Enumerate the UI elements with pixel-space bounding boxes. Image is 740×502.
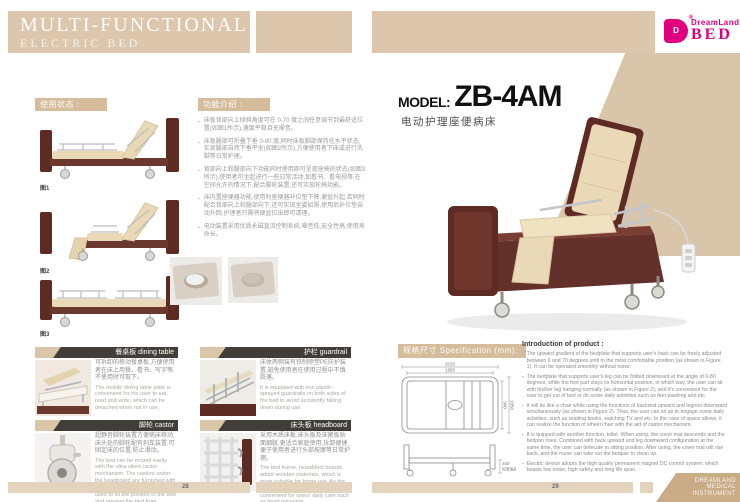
intro-bullet: ▪The upward gradient of the bedplate tha… xyxy=(522,351,727,371)
feature-title-zh: 护栏 xyxy=(304,349,318,356)
toilet-open-detail-image xyxy=(170,257,222,305)
feature-text-zh: 采用木质床板,床头板及床尾板贴面细腻,更适合家庭使用,拆卸便捷,便于使用者进行头… xyxy=(260,433,351,463)
feature-bullet-text: 床内置座便器功能,使用时座便器补位垫下降,便盆升起,若同时配合背部向上和腿部向下… xyxy=(204,195,366,218)
feature-title-zh: 脚轮 xyxy=(139,422,153,429)
feature-box-header: 护栏 guardrail xyxy=(200,347,351,358)
bed-figure-1-image xyxy=(35,110,185,182)
title-banner: MULTI-FUNCTIONAL ELECTRIC BED xyxy=(8,11,250,53)
toilet-closed-detail-image xyxy=(228,257,278,303)
bullet-icon: ▪ xyxy=(522,432,524,458)
feature-bullet-text: 床板背部向上倾斜角度可在 0-70 度之间任意调节到最舒适位置(如图1所示),速… xyxy=(204,118,366,134)
registered-mark-icon: ® xyxy=(689,15,693,21)
brand-text: DreamLand BED xyxy=(691,19,740,43)
intro-bullet-text: The bedplate that supports user's leg ca… xyxy=(527,374,727,400)
brand-logo: D ® DreamLand BED xyxy=(664,13,740,49)
dim-height: 450 xyxy=(502,461,510,466)
footer-bar-right-segment xyxy=(640,482,653,493)
feature-bullet: ▪背部向上和腿部向下功能同时使用即可呈现座椅的状态(如图3所示),使用者可坐起进… xyxy=(198,167,366,190)
intro-bullet-text: The upward gradient of the bedplate that… xyxy=(527,351,727,371)
footer-company-badge: DREAMLAND MEDICAL INSTRUMENT xyxy=(656,473,740,502)
intro-bullet-text: It is quipped with another function, toi… xyxy=(527,432,727,458)
intro-bullet-text: It will be like a chair while using the … xyxy=(527,403,727,429)
brand-mark-icon: D ® xyxy=(664,19,688,43)
catalog-spread: MULTI-FUNCTIONAL ELECTRIC BED D ® DreamL… xyxy=(0,0,740,502)
model-label: MODEL: xyxy=(398,95,450,112)
intro-bullet: ▪The bedplate that supports user's leg c… xyxy=(522,374,727,400)
introduction-block: Introduction of product : ▪The upward gr… xyxy=(522,341,727,477)
dim-inner-width: 900 xyxy=(503,401,508,409)
intro-bullet-text: Electric device adopts the high quality … xyxy=(527,461,727,474)
feature-title-zh: 餐桌板 xyxy=(115,349,136,356)
bullet-icon: ▪ xyxy=(522,461,524,474)
features-label: 功能介绍 : xyxy=(198,98,270,111)
dim-outer-width: 1050 xyxy=(510,400,515,411)
hero-bed-image xyxy=(392,116,727,336)
feature-box-header: 脚轮 castor xyxy=(35,420,178,431)
feature-title-en: dining table xyxy=(136,349,174,356)
feature-text-en: The bed can be moved easily with the ult… xyxy=(95,458,178,502)
model-number: ZB-4AM xyxy=(454,82,561,112)
banner-segment-left xyxy=(256,11,352,53)
bullet-icon: ▪ xyxy=(522,351,524,371)
bullet-icon: ▪ xyxy=(198,139,200,162)
dim-outer-length: 2020 xyxy=(445,362,456,367)
page-number-left: 28 xyxy=(182,484,189,490)
page-number-right: 29 xyxy=(552,484,559,490)
figure-1-caption: 图1 xyxy=(40,183,49,192)
bed-figure-3-image xyxy=(35,276,185,328)
dim-inner-length: 1950 xyxy=(445,368,456,373)
dining-table-photo xyxy=(35,360,91,416)
feature-box-dining-table: 餐桌板 dining table 可拆卸的移动餐桌板,方便使用者在床上用餐、看书… xyxy=(35,347,178,416)
introduction-title: Introduction of product : xyxy=(522,341,727,348)
bed-figure-2-image xyxy=(35,192,185,264)
intro-bullet: ▪Electric device adopts the high quality… xyxy=(522,461,727,474)
feature-bullet-list: ▪床板背部向上倾斜角度可在 0-70 度之间任意调节到最舒适位置(如图1所示),… xyxy=(198,118,366,244)
feature-text-zh: 可拆卸的移动餐桌板,方便使用者在床上用餐、看书、写字等,不使用时可取下。 xyxy=(95,360,178,383)
feature-bullet: ▪床板背部向上倾斜角度可在 0-70 度之间任意调节到最舒适位置(如图1所示),… xyxy=(198,118,366,134)
feature-bullet-text: 背部向上和腿部向下功能同时使用即可呈现座椅的状态(如图3所示),使用者可坐起进行… xyxy=(204,167,366,190)
banner-segment-right xyxy=(372,11,655,53)
bullet-icon: ▪ xyxy=(198,118,200,134)
bullet-icon: ▪ xyxy=(198,167,200,190)
feature-title-zh: 床头板 xyxy=(291,422,312,429)
figure-2-caption: 图2 xyxy=(40,266,49,275)
brand-mark-letter: D xyxy=(673,27,679,35)
feature-box-header: 床头板 headboard xyxy=(200,420,351,431)
bullet-icon: ▪ xyxy=(198,224,200,240)
feature-bullet: ▪电动装置采用优质永磁直流控制系统,噪音低,安全性高,使用寿命长。 xyxy=(198,224,366,240)
footer-bar-right xyxy=(372,482,633,493)
specification-label: 规格尺寸 Specification (mm): xyxy=(398,344,526,358)
dim-height-note: 标准高度 xyxy=(502,467,516,472)
bullet-icon: ▪ xyxy=(522,403,524,429)
feature-bullet-text: 床板腿部可折叠下垂 0-80 度,同时床板脚部保持在水平状态,实现腿部自然下垂平… xyxy=(204,139,366,162)
feature-box-guardrail: 护栏 guardrail 床体两侧装有铁制喷塑PE防护装置,避免使用者在使用过程… xyxy=(200,347,351,416)
specification-drawing: 2020 1950 900 1050 xyxy=(398,361,516,481)
bullet-icon: ▪ xyxy=(522,374,524,400)
page-title: MULTI-FUNCTIONAL xyxy=(20,14,250,37)
feature-bullet: ▪床内置座便器功能,使用时座便器补位垫下降,便盆升起,若同时配合背部向上和腿部向… xyxy=(198,195,366,218)
brand-word: BED xyxy=(691,27,740,43)
feature-text-en: The mobile dining table plate is conveni… xyxy=(95,385,178,413)
feature-bullet-text: 电动装置采用优质永磁直流控制系统,噪音低,安全性高,使用寿命长。 xyxy=(204,224,366,240)
feature-text-en: It is equipped with iron plastic-sprayed… xyxy=(260,385,351,413)
badge-line-3: INSTRUMENT xyxy=(693,491,736,497)
figure-3-caption: 图3 xyxy=(40,329,49,338)
intro-bullet: ▪It is quipped with another function, to… xyxy=(522,432,727,458)
page-subtitle: ELECTRIC BED xyxy=(20,36,250,51)
bullet-icon: ▪ xyxy=(198,195,200,218)
guardrail-photo xyxy=(200,360,256,416)
feature-text-zh: 超静音脚轮装置方便病床移动,床头处的脚轮配有刹车装置,可固定床的位置,防止滑动。 xyxy=(95,433,178,456)
intro-bullet: ▪It will be like a chair while using the… xyxy=(522,403,727,429)
feature-title-en: headboard xyxy=(312,422,347,429)
footer-bar-left xyxy=(8,482,250,493)
feature-text-zh: 床体两侧装有铁制喷塑PE防护装置,避免使用者在使用过程中不慎跌落。 xyxy=(260,360,351,383)
feature-title-en: guardrail xyxy=(318,349,347,356)
feature-bullet: ▪床板腿部可折叠下垂 0-80 度,同时床板脚部保持在水平状态,实现腿部自然下垂… xyxy=(198,139,366,162)
feature-title-en: castor xyxy=(153,422,174,429)
feature-box-header: 餐桌板 dining table xyxy=(35,347,178,358)
model-heading: MODEL: ZB-4AM xyxy=(398,82,562,112)
footer-bar-left-segment xyxy=(256,482,352,493)
